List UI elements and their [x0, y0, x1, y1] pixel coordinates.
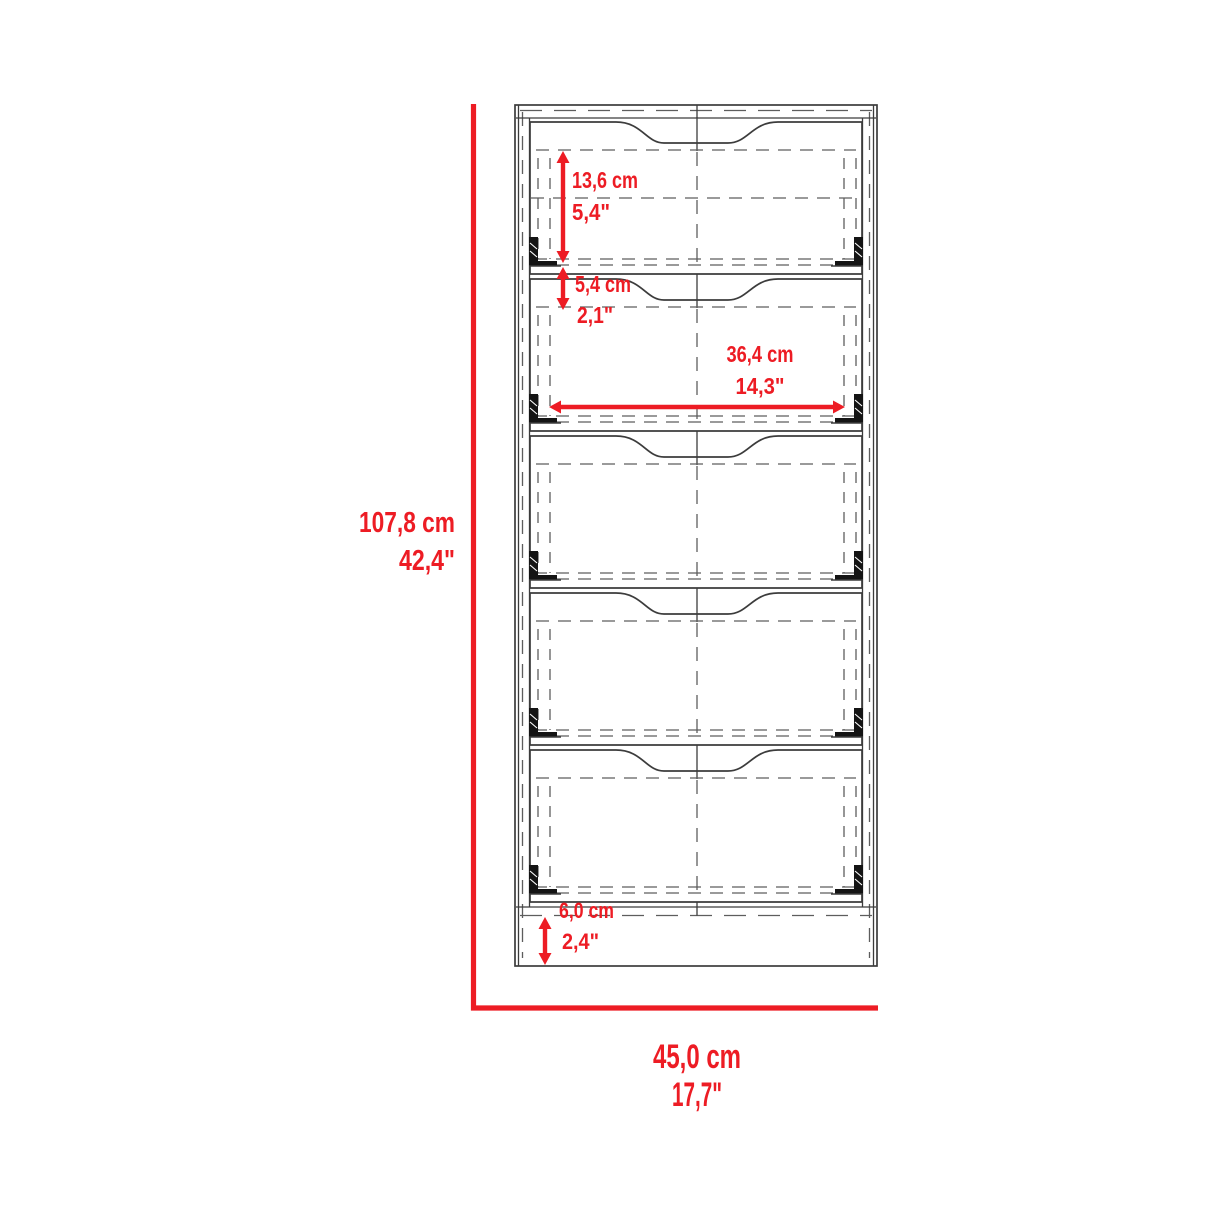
drawer-spacing-label-imperial: 2,1"	[577, 302, 613, 328]
overall-width-label-imperial: 17,7"	[672, 1076, 722, 1114]
hinge-right-4-icon	[831, 708, 863, 737]
cabinet-top-rail	[516, 105, 876, 118]
top-drawer-height-label-metric: 13,6 cm	[572, 167, 638, 193]
hinge-left-4-icon	[529, 708, 561, 737]
drawer-spacing-label-metric: 5,4 cm	[575, 271, 631, 297]
overall-width-label-metric: 45,0 cm	[653, 1038, 741, 1076]
drawer-3	[530, 431, 862, 588]
base-height-arrow	[539, 917, 552, 965]
hinge-brackets	[529, 237, 863, 894]
hinge-right-3-icon	[831, 551, 863, 580]
cabinet-outline	[515, 105, 877, 966]
overall-height-label-imperial: 42,4"	[399, 545, 455, 577]
drawer-5	[530, 745, 862, 902]
dimension-drawing-page: 13,6 cm 5,4" 5,4 cm 2,1" 36,4 cm 14,3" 1…	[0, 0, 1214, 1214]
hinge-left-3-icon	[529, 551, 561, 580]
cabinet-dimension-diagram: 13,6 cm 5,4" 5,4 cm 2,1" 36,4 cm 14,3" 1…	[0, 0, 1214, 1214]
base-height-label-imperial: 2,4"	[562, 929, 599, 954]
top-drawer-height-label-imperial: 5,4"	[572, 199, 610, 225]
drawer-inner-width-label-imperial: 14,3"	[736, 373, 785, 399]
top-drawer-height-arrow	[557, 151, 570, 263]
base-height-label-metric: 6,0 cm	[559, 898, 614, 923]
hinge-left-5-icon	[529, 865, 561, 894]
drawer-4	[530, 588, 862, 745]
drawer-1	[530, 117, 862, 274]
overall-height-label-metric: 107,8 cm	[359, 507, 455, 539]
drawer-inner-width-label-metric: 36,4 cm	[727, 341, 794, 367]
hinge-left-1-icon	[529, 237, 561, 266]
hinge-right-5-icon	[831, 865, 863, 894]
hinge-right-1-icon	[831, 237, 863, 266]
